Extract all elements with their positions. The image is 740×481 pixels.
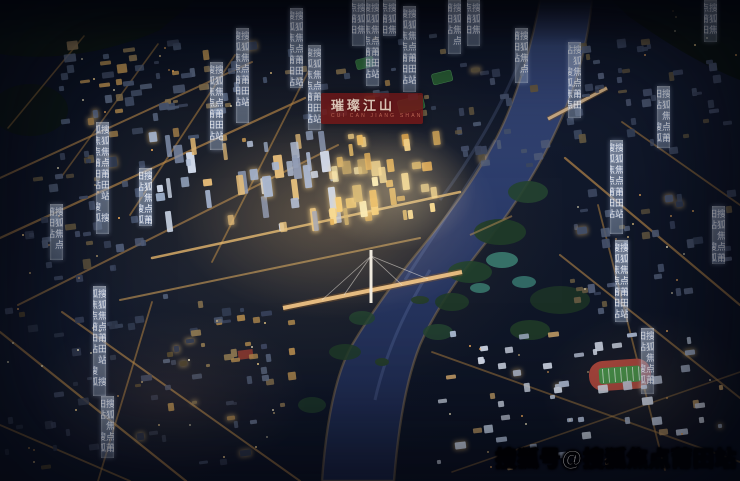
watermark-strip: 搜狐焦点莆田站 搜狐焦点莆田站 搜狐焦点莆田站 搜狐焦点莆田站 [93, 286, 106, 396]
watermark-strip: 搜狐焦点莆田站 搜狐焦点莆田站 搜狐焦点莆田站 搜狐焦点莆田站 [383, 0, 396, 36]
aerial-city-night-render: 搜狐焦点莆田站 搜狐焦点莆田站 搜狐焦点莆田站 搜狐焦点莆田站 搜狐焦点莆田站 … [0, 0, 740, 481]
watermark-strip: 搜狐焦点莆田站 搜狐焦点莆田站 搜狐焦点莆田站 搜狐焦点莆田站 [101, 396, 114, 458]
watermark-strip: 搜狐焦点莆田站 搜狐焦点莆田站 搜狐焦点莆田站 搜狐焦点莆田站 [610, 140, 623, 234]
watermark-strip: 搜狐焦点莆田站 搜狐焦点莆田站 搜狐焦点莆田站 搜狐焦点莆田站 [704, 0, 717, 42]
watermark-strip: 搜狐焦点莆田站 搜狐焦点莆田站 搜狐焦点莆田站 搜狐焦点莆田站 [352, 0, 365, 46]
watermark-strip: 搜狐焦点莆田站 搜狐焦点莆田站 搜狐焦点莆田站 搜狐焦点莆田站 [236, 28, 249, 123]
watermark-strip: 搜狐焦点莆田站 搜狐焦点莆田站 搜狐焦点莆田站 搜狐焦点莆田站 [712, 206, 725, 264]
watermark-strip: 搜狐焦点莆田站 搜狐焦点莆田站 搜狐焦点莆田站 搜狐焦点莆田站 [467, 0, 480, 46]
watermark-strip: 搜狐焦点莆田站 搜狐焦点莆田站 搜狐焦点莆田站 搜狐焦点莆田站 [290, 8, 303, 88]
project-name: 璀璨江山 [331, 99, 423, 112]
watermark-strip: 搜狐焦点莆田站 搜狐焦点莆田站 搜狐焦点莆田站 搜狐焦点莆田站 [96, 122, 109, 234]
watermark-strip: 搜狐焦点莆田站 搜狐焦点莆田站 搜狐焦点莆田站 搜狐焦点莆田站 [641, 328, 654, 394]
watermark-strips-layer: 搜狐焦点莆田站 搜狐焦点莆田站 搜狐焦点莆田站 搜狐焦点莆田站 搜狐焦点莆田站 … [0, 0, 740, 481]
watermark-strip: 搜狐焦点莆田站 搜狐焦点莆田站 搜狐焦点莆田站 搜狐焦点莆田站 [515, 28, 528, 83]
project-name-latin: CUI CAN JIANG SHAN [331, 114, 423, 119]
watermark-strip: 搜狐焦点莆田站 搜狐焦点莆田站 搜狐焦点莆田站 搜狐焦点莆田站 [403, 6, 416, 92]
watermark-strip: 搜狐焦点莆田站 搜狐焦点莆田站 搜狐焦点莆田站 搜狐焦点莆田站 [139, 168, 152, 226]
watermark-strip: 搜狐焦点莆田站 搜狐焦点莆田站 搜狐焦点莆田站 搜狐焦点莆田站 [308, 45, 321, 130]
watermark-strip: 搜狐焦点莆田站 搜狐焦点莆田站 搜狐焦点莆田站 搜狐焦点莆田站 [568, 42, 581, 118]
project-logo: 璀璨江山 CUI CAN JIANG SHAN [321, 93, 423, 124]
watermark-strip: 搜狐焦点莆田站 搜狐焦点莆田站 搜狐焦点莆田站 搜狐焦点莆田站 [657, 86, 670, 148]
sohu-watermark: 搜狐号@搜狐焦点莆田站 [496, 443, 737, 473]
watermark-strip: 搜狐焦点莆田站 搜狐焦点莆田站 搜狐焦点莆田站 搜狐焦点莆田站 [210, 62, 223, 150]
watermark-strip: 搜狐焦点莆田站 搜狐焦点莆田站 搜狐焦点莆田站 搜狐焦点莆田站 [615, 240, 628, 322]
watermark-strip: 搜狐焦点莆田站 搜狐焦点莆田站 搜狐焦点莆田站 搜狐焦点莆田站 [50, 204, 63, 260]
watermark-strip: 搜狐焦点莆田站 搜狐焦点莆田站 搜狐焦点莆田站 搜狐焦点莆田站 [366, 0, 379, 86]
watermark-strip: 搜狐焦点莆田站 搜狐焦点莆田站 搜狐焦点莆田站 搜狐焦点莆田站 [448, 0, 461, 54]
